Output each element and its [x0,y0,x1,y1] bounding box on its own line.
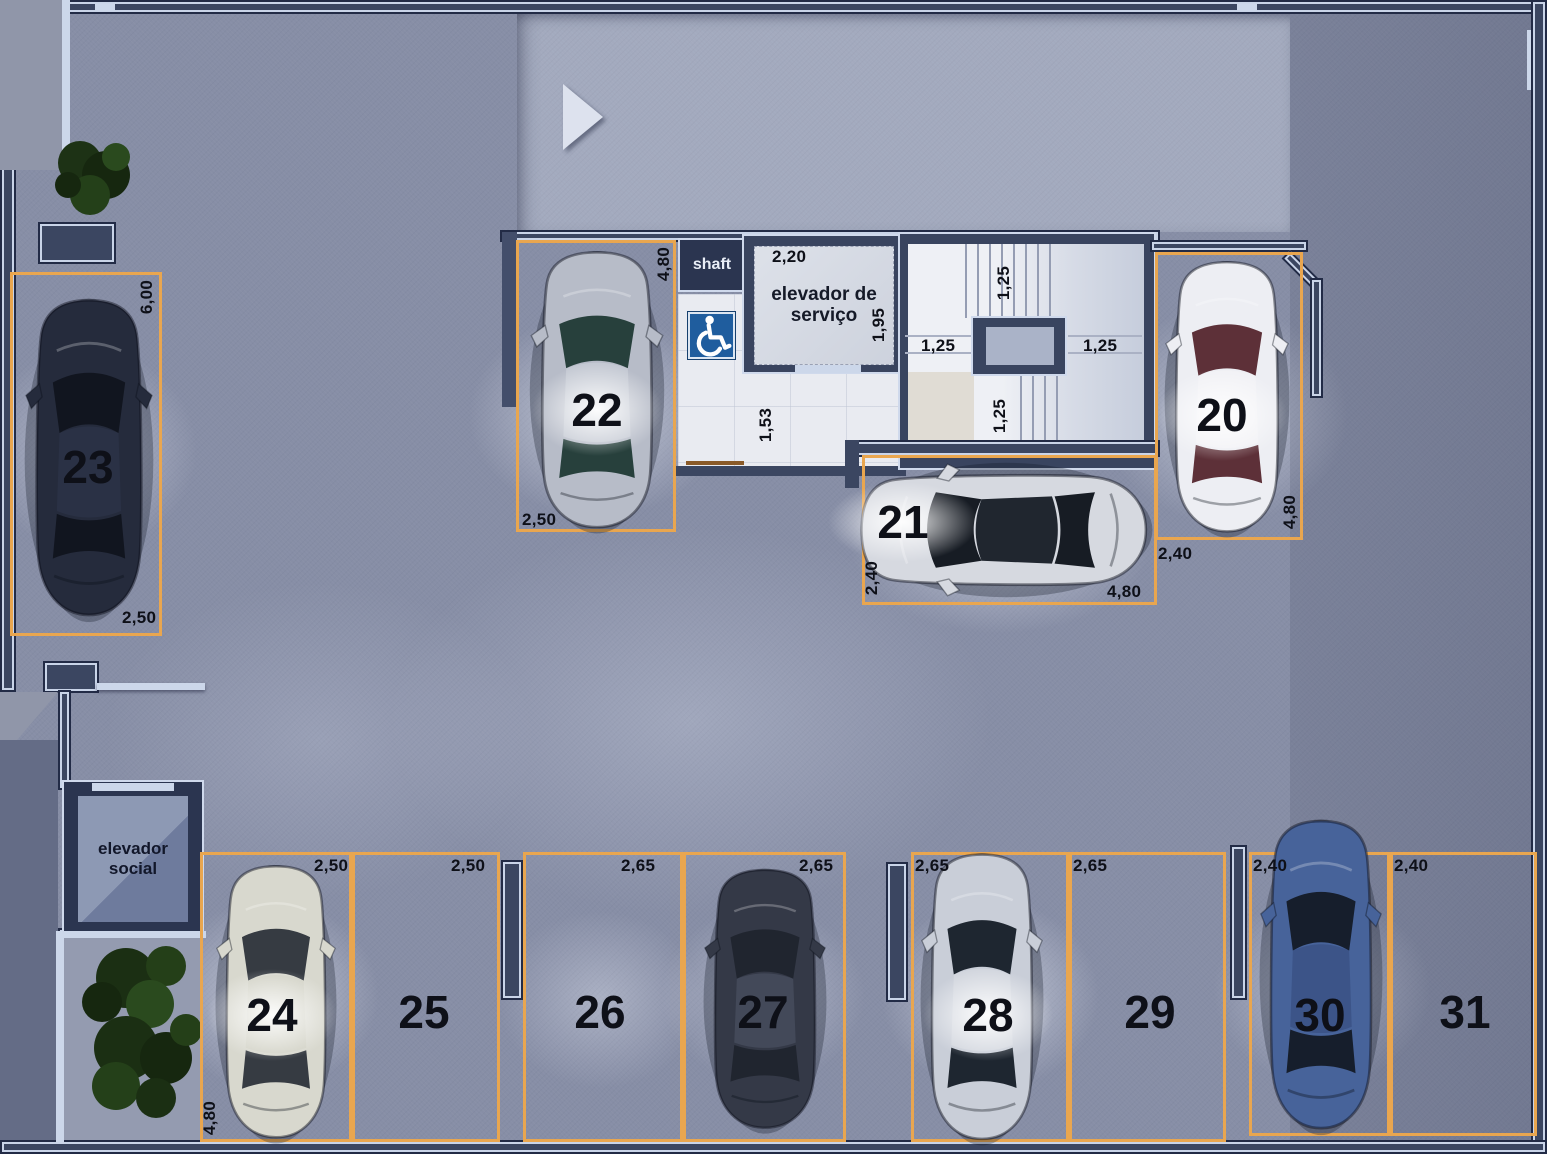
social-elevator-door [92,783,174,791]
stall-number-24: 24 [246,988,297,1042]
dim-stall26-width: 2,65 [621,856,655,876]
column [1230,845,1247,1000]
stall-number-28: 28 [962,988,1013,1042]
dim-stall24-depth: 4,80 [200,1101,220,1135]
wall-segment [58,690,71,790]
wall-segment [1310,278,1323,398]
dim-stall22-depth: 4,80 [654,247,674,281]
dim-stairs-top: 1,25 [994,266,1014,300]
dim-stall21-depth: 4,80 [1107,582,1141,602]
stall-number-27: 27 [737,985,788,1039]
wall-thin [97,683,205,690]
dim-stall20-depth: 4,80 [1280,495,1300,529]
dim-stairs-right: 1,25 [1083,336,1117,356]
accessible-parking-sign [688,312,735,359]
column [886,862,908,1002]
tree [46,133,146,231]
shaft-room: shaft [678,238,746,292]
core-wall-left [502,232,517,407]
stair-landing-inner [986,327,1054,365]
dim-stall29-width: 2,65 [1073,856,1107,876]
dim-service-elevator-width: 2,20 [772,247,806,267]
dim-stall27-width: 2,65 [799,856,833,876]
dim-stairs-bottom: 1,25 [990,399,1010,433]
wall-top [62,0,1547,14]
service-elevator-label: elevador de serviço [769,285,879,327]
dim-stall23-depth: 6,00 [137,280,157,314]
wall-top-notch [95,3,115,11]
dim-stall23-width: 2,50 [122,608,156,628]
exterior-strip [0,740,58,1140]
stall-number-22: 22 [571,383,622,437]
direction-arrow-icon [563,84,603,150]
dim-stairs-left: 1,25 [921,336,955,356]
dim-stall28-width: 2,65 [915,856,949,876]
service-elevator-door [795,365,861,373]
wall-top-notch [1237,3,1257,11]
dim-stall25-width: 2,50 [451,856,485,876]
dim-stall21-width: 2,40 [862,561,882,595]
stall-number-20: 20 [1196,388,1247,442]
dim-lobby: 1,53 [756,408,776,442]
stall-number-30: 30 [1294,988,1345,1042]
stall-number-26: 26 [574,985,625,1039]
lobby-door-threshold [686,461,744,465]
wheelchair-icon [688,312,735,359]
stall-number-29: 29 [1124,985,1175,1039]
stall-number-31: 31 [1439,985,1490,1039]
social-elevator-room: elevador social [78,796,188,922]
dim-stall30-width: 2,40 [1253,856,1287,876]
wall-above-stall20 [1150,240,1308,252]
parking-floor-plan: elevador social shaft elevador de se [0,0,1547,1154]
dim-stall31-width: 2,40 [1394,856,1428,876]
shaft-label: shaft [678,238,746,292]
column [43,661,99,693]
dim-stall24-width: 2,50 [314,856,348,876]
dim-stall22-width: 2,50 [522,510,556,530]
planter-wall [56,931,64,1143]
stall-number-23: 23 [62,440,113,494]
planter-wall [56,931,206,938]
column [501,860,523,1000]
stall-number-25: 25 [398,985,449,1039]
entrance-ramp [517,13,1290,232]
social-elevator-label: elevador social [90,839,176,878]
wall-right-notch [1527,30,1531,90]
dim-service-elevator-depth: 1,95 [869,308,889,342]
stall-number-21: 21 [877,495,928,549]
dim-stall20-width: 2,40 [1158,544,1192,564]
